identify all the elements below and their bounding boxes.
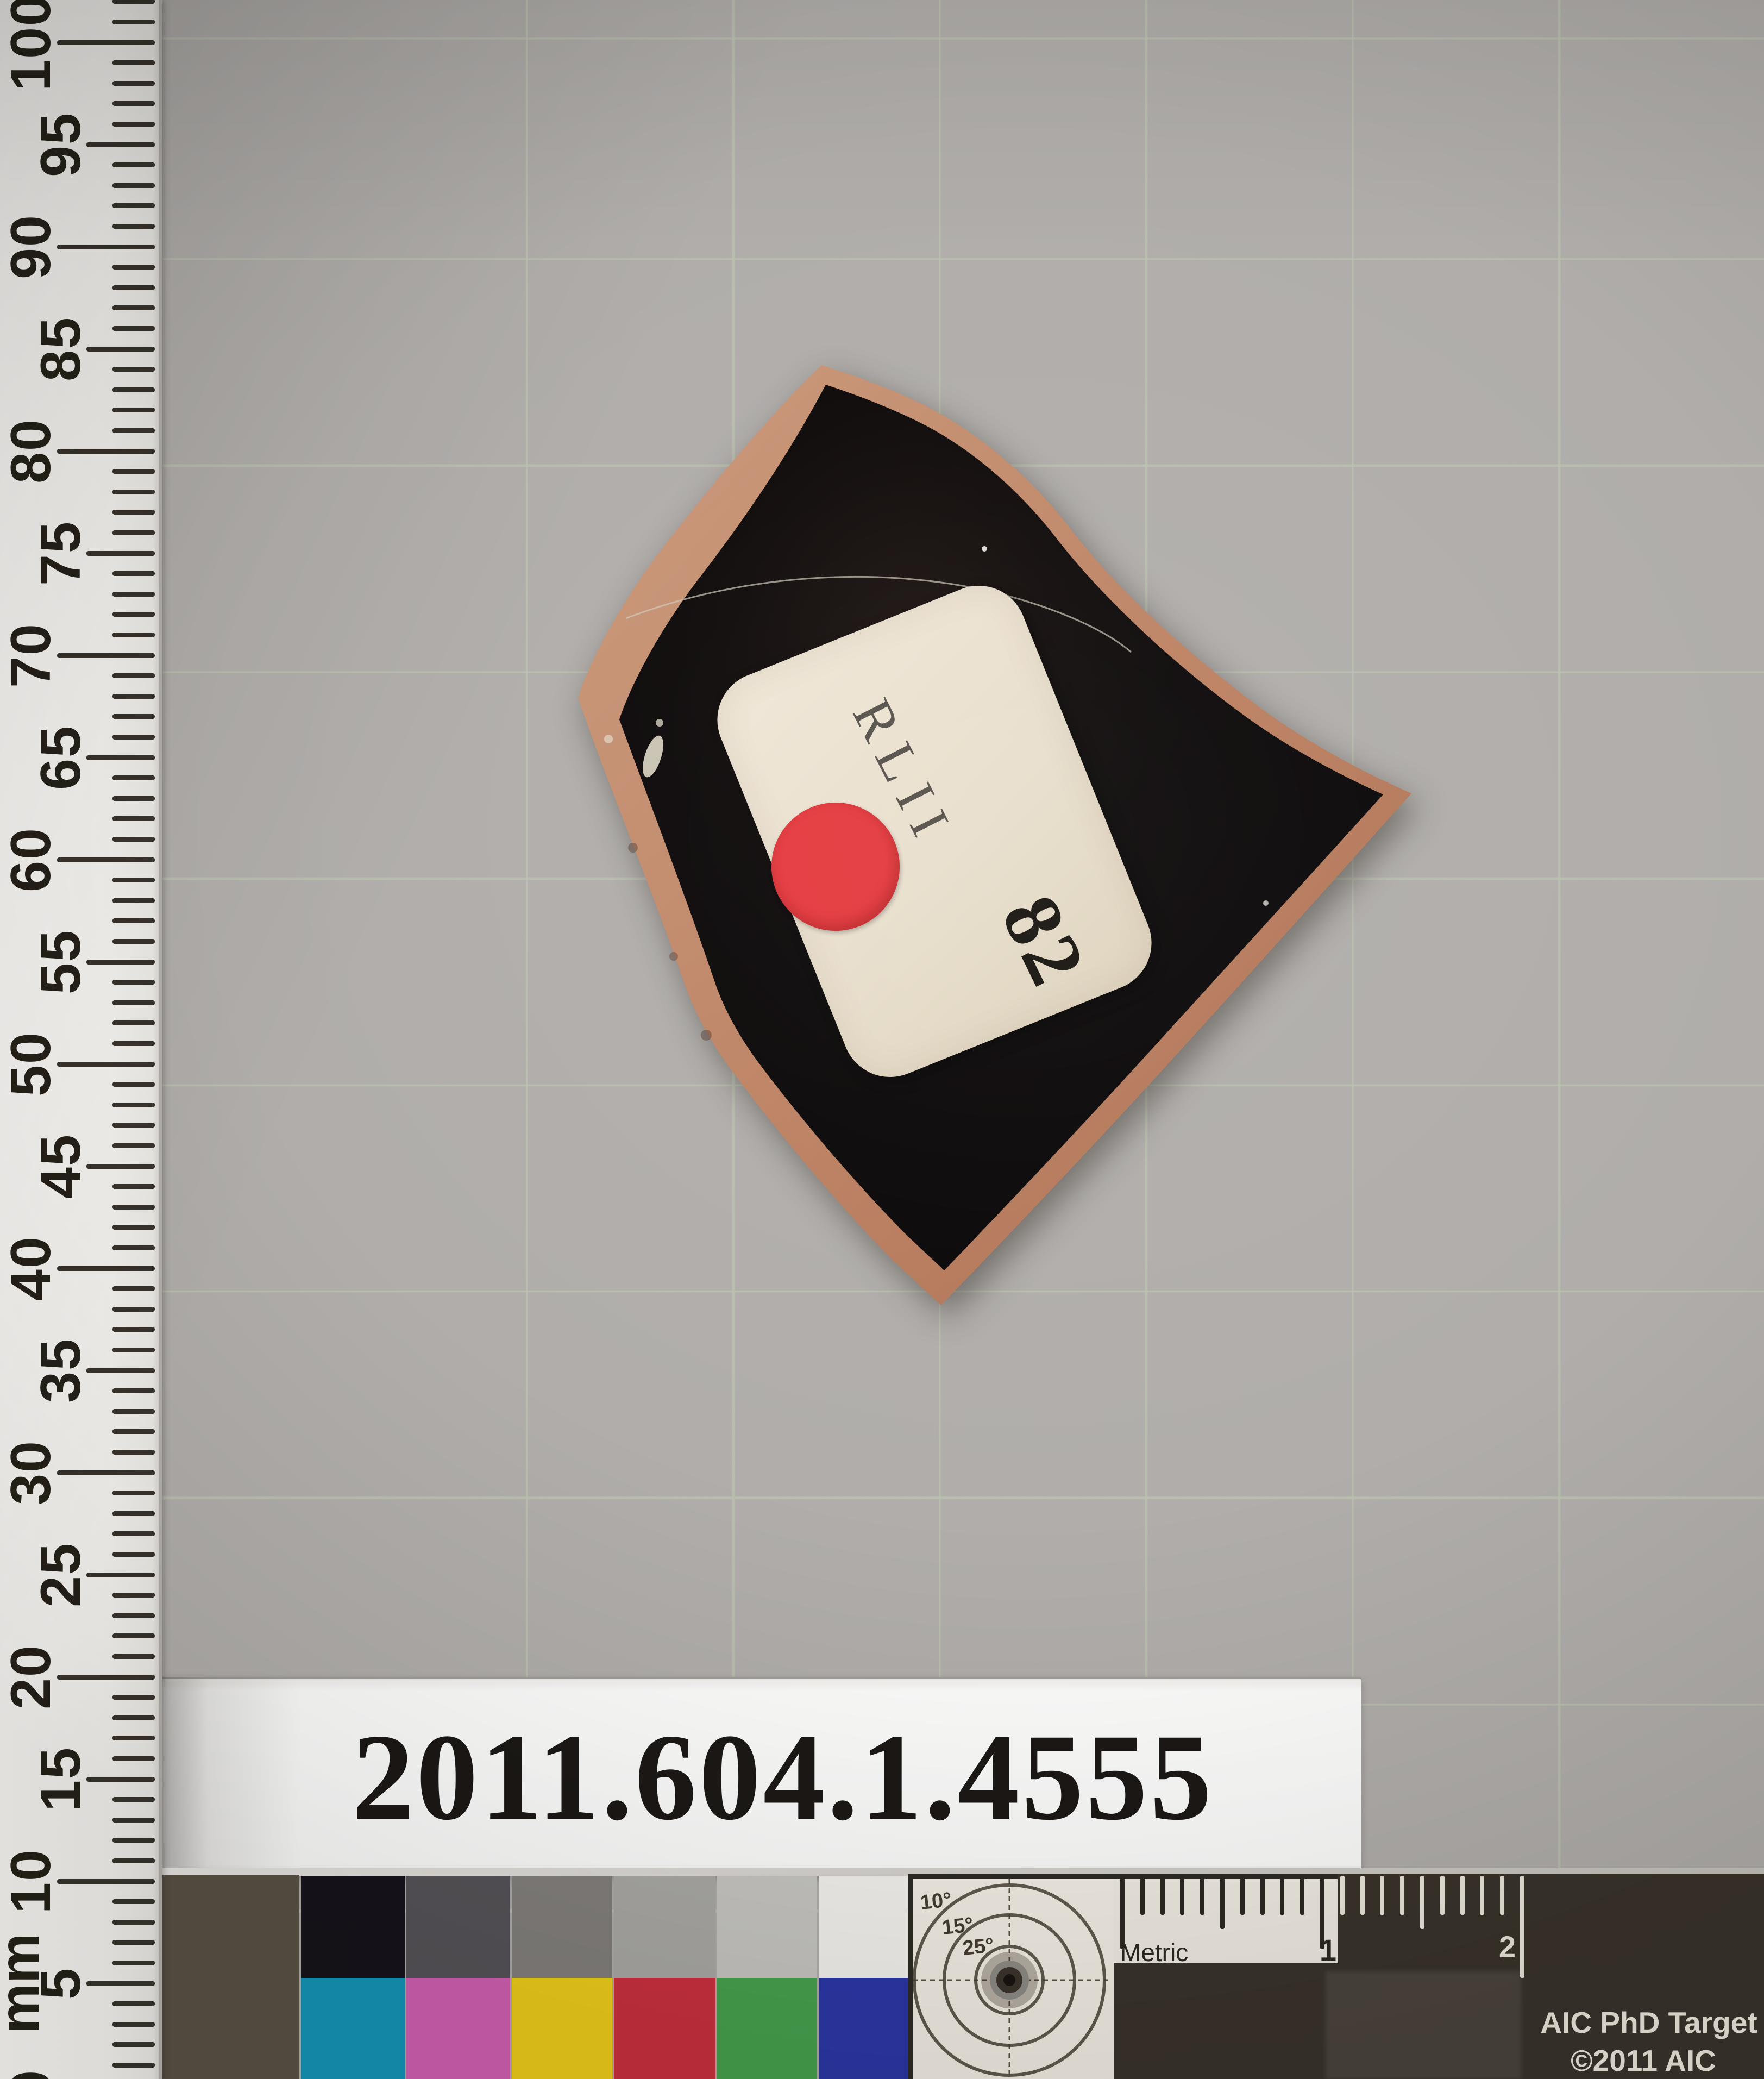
ruler: mm 0510152025303540455055606570758085909… (0, 0, 162, 2079)
ruler-tick (57, 857, 155, 862)
ruler-tick (112, 898, 155, 903)
ruler-tick (112, 1041, 155, 1046)
ruler-tick (112, 918, 155, 923)
ruler-tick (112, 305, 155, 310)
ruler-tick (112, 1552, 155, 1557)
sherd-glaze-speck (656, 719, 663, 727)
ruler-tick (112, 1348, 155, 1352)
target-tape-patch (1326, 1971, 1521, 2079)
ruler-tick (112, 1000, 155, 1005)
ruler-tick (112, 694, 155, 699)
ruler-tick (112, 408, 155, 412)
ruler-tick (86, 755, 155, 760)
ruler-tick (112, 1225, 155, 1230)
accession-number: 2011.604.1.4555 (159, 1706, 1214, 1849)
sherd-glaze-speck (1263, 900, 1269, 906)
metric-ruler-tick (1240, 1876, 1245, 1915)
ruler-number: 95 (29, 85, 94, 204)
ruler-tick (112, 1715, 155, 1720)
ruler-tick (112, 1593, 155, 1598)
ruler-tick (112, 1756, 155, 1761)
gray-scale-patch (406, 1876, 510, 1978)
ruler-number: 5 (29, 1924, 94, 2043)
gray-scale-patch (512, 1876, 612, 1978)
ruler-tick (112, 878, 155, 882)
ruler-tick (86, 142, 155, 147)
ruler-number: 20 (0, 1617, 64, 1737)
ruler-tick (112, 592, 155, 597)
ruler-number: 25 (29, 1515, 94, 1635)
ruler-number: 40 (0, 1208, 64, 1328)
ruler-tick (86, 960, 155, 965)
ruler-tick (112, 1286, 155, 1291)
metric-ruler-tick (1280, 1876, 1284, 1915)
ruler-tick (112, 775, 155, 780)
ruler-tick (112, 612, 155, 617)
ruler-tick (112, 1920, 155, 1925)
ruler-tick (112, 1143, 155, 1148)
grommet-hole (1003, 1974, 1015, 1986)
ruler-tick (112, 1103, 155, 1107)
ruler-tick (112, 428, 155, 433)
ruler-tick (112, 122, 155, 127)
accession-number-card: 2011.604.1.4555 (159, 1677, 1361, 1876)
metric-ruler-tick (1260, 1876, 1265, 1915)
ruler-tick (112, 1797, 155, 1802)
ruler-number: 30 (0, 1413, 64, 1532)
ruler-tick (112, 1654, 155, 1659)
sherd-glaze-speck (982, 546, 987, 552)
ruler-tick (86, 1164, 155, 1169)
ruler-tick (112, 796, 155, 801)
ruler-number: 65 (29, 698, 94, 817)
metric-label: Metric (1120, 1938, 1188, 1967)
metric-ruler-tick (1440, 1876, 1445, 1915)
ruler-tick (112, 387, 155, 392)
ruler-number: 75 (29, 493, 94, 613)
ruler-tick (86, 1777, 155, 1782)
metric-ruler-tick (1340, 1876, 1345, 1915)
ruler-tick (112, 1205, 155, 1210)
ruler-tick (112, 2001, 155, 2006)
sherd-edge-speck (604, 735, 613, 743)
ruler-tick (112, 81, 155, 86)
ruler-tick (57, 245, 155, 249)
ruler-tick (112, 530, 155, 535)
ruler-number: 15 (29, 1719, 94, 1839)
ruler-tick (57, 40, 155, 45)
ruler-tick (112, 162, 155, 167)
metric-ruler-tick (1420, 1876, 1424, 1929)
ruler-tick (112, 1409, 155, 1414)
metric-ruler-tick (1180, 1876, 1184, 1915)
color-patch (512, 1978, 612, 2079)
ruler-tick (57, 653, 155, 658)
sherd-edge-speck (701, 1030, 712, 1041)
ruler-tick (112, 0, 155, 4)
ruler-tick (112, 203, 155, 208)
red-dot-sticker (771, 803, 900, 931)
metric-ruler-tick (1520, 1876, 1524, 1978)
ruler-tick (112, 490, 155, 494)
metric-ruler-tick (1460, 1876, 1465, 1915)
ruler-tick (112, 1327, 155, 1332)
ruler-tick (112, 1695, 155, 1700)
ruler-tick (112, 1736, 155, 1740)
ruler-tick (112, 980, 155, 985)
ruler-tick (112, 1429, 155, 1434)
ruler-tick (112, 2022, 155, 2027)
ruler-number: 100 (0, 0, 64, 102)
ruler-tick (112, 1388, 155, 1393)
metric-ruler-tick (1360, 1876, 1365, 1915)
ruler-tick (112, 101, 155, 106)
metric-cm-label-1: 1 (1293, 1932, 1336, 1968)
ruler-tick (112, 183, 155, 188)
ruler-tick (112, 1245, 155, 1250)
ruler-tick (112, 633, 155, 637)
ruler-tick (86, 1368, 155, 1373)
ruler-tick (112, 571, 155, 576)
ruler-tick (86, 1573, 155, 1577)
ruler-number: 50 (0, 1004, 64, 1124)
ruler-tick (112, 816, 155, 821)
metric-cm-label-2: 2 (1472, 1929, 1516, 1964)
gray-scale-patch (819, 1876, 908, 1978)
registration-target-card: 10° 15° 25° (908, 1874, 1114, 2079)
sherd-edge-speck (628, 843, 638, 853)
ruler-tick (112, 939, 155, 944)
ruler-tick (57, 1675, 155, 1680)
fabric-reference-patch (160, 1875, 299, 2079)
ruler-tick (112, 60, 155, 65)
metric-ruler-tick (1480, 1876, 1484, 1915)
ruler-tick (112, 1307, 155, 1312)
color-patch (406, 1978, 510, 2079)
gray-scale-patch (717, 1876, 817, 1978)
photo-scene: RLII 82 2011.604.1.4555 10° 15° 25° (0, 0, 1764, 2079)
sherd-edge-speck (669, 952, 678, 961)
gray-scale-patch (301, 1876, 405, 1978)
ruler-tick (112, 1899, 155, 1904)
ruler-tick (112, 2042, 155, 2047)
color-patch (717, 1978, 817, 2079)
ruler-tick (86, 551, 155, 556)
ruler-number: 70 (0, 596, 64, 715)
ruler-tick (112, 1491, 155, 1495)
ruler-tick (57, 449, 155, 454)
ruler-tick (112, 1858, 155, 1863)
ruler-tick (112, 1818, 155, 1823)
ruler-number: 35 (29, 1311, 94, 1430)
metric-ruler-tick (1140, 1876, 1145, 1915)
metric-ruler-tick (1200, 1876, 1204, 1915)
ruler-tick (112, 735, 155, 740)
ruler-number: 45 (29, 1106, 94, 1226)
ruler-tick (112, 265, 155, 270)
ruler-tick (112, 714, 155, 719)
ruler-tick (112, 367, 155, 372)
degree-label-10: 10° (919, 1888, 953, 1915)
ruler-tick (57, 1266, 155, 1271)
color-patch (819, 1978, 908, 2079)
ruler-tick (112, 510, 155, 515)
ruler-tick (112, 1511, 155, 1516)
target-brand-line1: AIC PhD Target (1494, 2005, 1764, 2040)
ruler-tick (112, 326, 155, 331)
ruler-tick (112, 1082, 155, 1087)
color-patch (301, 1978, 405, 2079)
ruler-tick (112, 1450, 155, 1455)
degree-label-25: 25° (962, 1934, 995, 1961)
ruler-number: 90 (0, 187, 64, 306)
ruler-tick (112, 1940, 155, 1945)
ruler-tick (112, 1961, 155, 1965)
ruler-tick (112, 673, 155, 678)
calibration-target: 10° 15° 25° Metric 1 2 AIC PhD Target ©2… (158, 1868, 1764, 2079)
target-brand-line2: ©2011 AIC (1494, 2043, 1764, 2078)
ruler-tick (112, 1613, 155, 1618)
ruler-tick (112, 2063, 155, 2068)
ruler-number: 60 (0, 800, 64, 919)
gray-scale-patch (614, 1876, 715, 1978)
color-patch (614, 1978, 715, 2079)
ruler-tick (112, 224, 155, 229)
ruler-number: 55 (29, 902, 94, 1022)
ruler-tick (112, 1184, 155, 1189)
ruler-tick (112, 1123, 155, 1128)
metric-ruler-tick (1400, 1876, 1404, 1915)
ruler-tick (86, 1981, 155, 1986)
ruler-number: 10 (0, 1821, 64, 1941)
metric-ruler-tick (1300, 1876, 1304, 1915)
metric-ruler-tick (1500, 1876, 1504, 1915)
ruler-tick (57, 1879, 155, 1884)
metric-ruler-tick (1160, 1876, 1165, 1915)
ruler-tick (112, 1020, 155, 1025)
metric-ruler-tick (1380, 1876, 1384, 1915)
metric-ruler-tick (1220, 1876, 1225, 1929)
ruler-tick (86, 347, 155, 352)
ruler-tick (112, 837, 155, 842)
ruler-tick (112, 1531, 155, 1536)
ruler-number: 85 (29, 289, 94, 409)
ruler-tick (57, 1470, 155, 1475)
ruler-tick (57, 1062, 155, 1067)
ruler-number: 80 (0, 391, 64, 511)
ruler-tick (112, 20, 155, 24)
ruler-tick (112, 1633, 155, 1638)
ruler-tick (112, 1838, 155, 1843)
ruler-tick (112, 469, 155, 474)
ruler-tick (112, 285, 155, 290)
